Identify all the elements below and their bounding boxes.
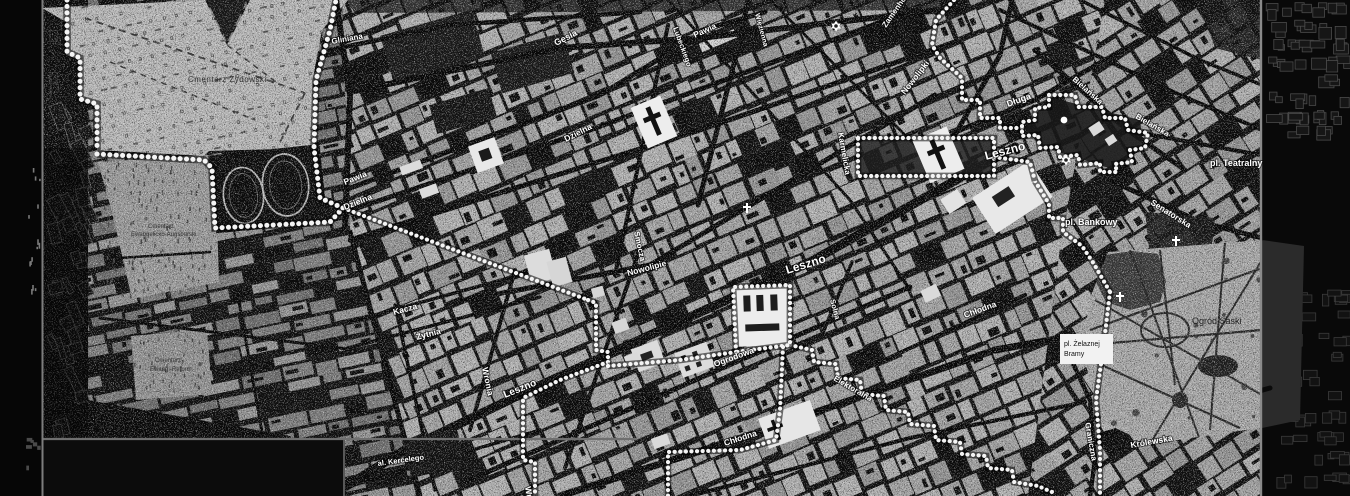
- svg-text:Ewang.-Reform.: Ewang.-Reform.: [150, 367, 194, 373]
- svg-text:Ogród Saski: Ogród Saski: [1192, 316, 1242, 326]
- svg-text:Bramy: Bramy: [1064, 351, 1085, 358]
- svg-text:pl. Teatralny: pl. Teatralny: [1210, 158, 1262, 168]
- svg-text:Cmentarz: Cmentarz: [155, 358, 181, 364]
- svg-text:Cmentarz: Cmentarz: [148, 224, 174, 230]
- svg-text:pl. Żelaznej: pl. Żelaznej: [1064, 339, 1100, 348]
- svg-text:Ewangelicko-Augsburski: Ewangelicko-Augsburski: [131, 232, 196, 238]
- svg-text:pl. Bankowy: pl. Bankowy: [1065, 217, 1118, 227]
- svg-text:Cmentarz Żydowski: Cmentarz Żydowski: [188, 75, 267, 84]
